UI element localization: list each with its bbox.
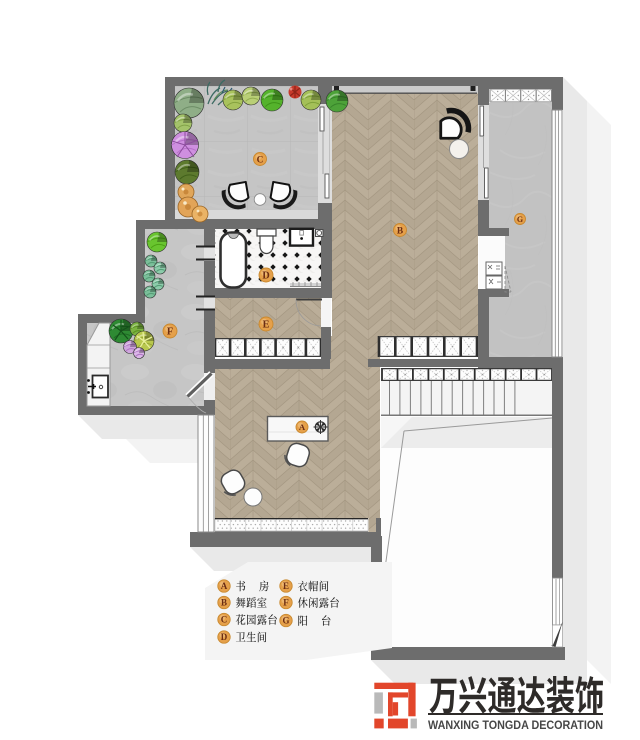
svg-text:D: D xyxy=(262,271,269,282)
svg-text:C: C xyxy=(257,155,264,165)
svg-text:D: D xyxy=(221,632,228,642)
svg-text:E: E xyxy=(283,581,289,591)
svg-text:G: G xyxy=(282,616,289,626)
svg-text:C: C xyxy=(221,615,228,625)
svg-text:E: E xyxy=(263,320,270,331)
svg-text:F: F xyxy=(283,598,289,608)
svg-text:WANXING TONGDA DECORATION: WANXING TONGDA DECORATION xyxy=(428,718,603,732)
svg-text:A: A xyxy=(221,581,228,591)
svg-text:A: A xyxy=(299,422,306,432)
svg-text:G: G xyxy=(517,215,523,224)
svg-text:B: B xyxy=(397,226,403,236)
svg-text:B: B xyxy=(221,598,227,608)
svg-text:F: F xyxy=(167,327,173,338)
